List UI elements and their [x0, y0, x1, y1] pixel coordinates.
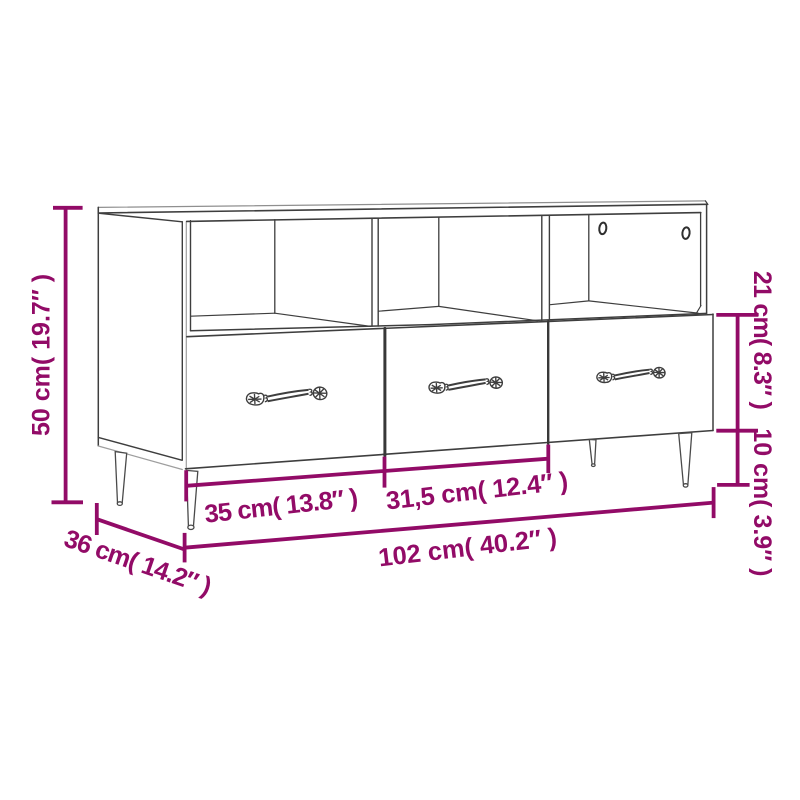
- svg-text:10 cm( 3.9″ ): 10 cm( 3.9″ ): [748, 428, 776, 576]
- svg-text:21 cm( 8.3″ ): 21 cm( 8.3″ ): [748, 271, 776, 410]
- svg-text:50 cm( 19.7″ ): 50 cm( 19.7″ ): [28, 274, 56, 436]
